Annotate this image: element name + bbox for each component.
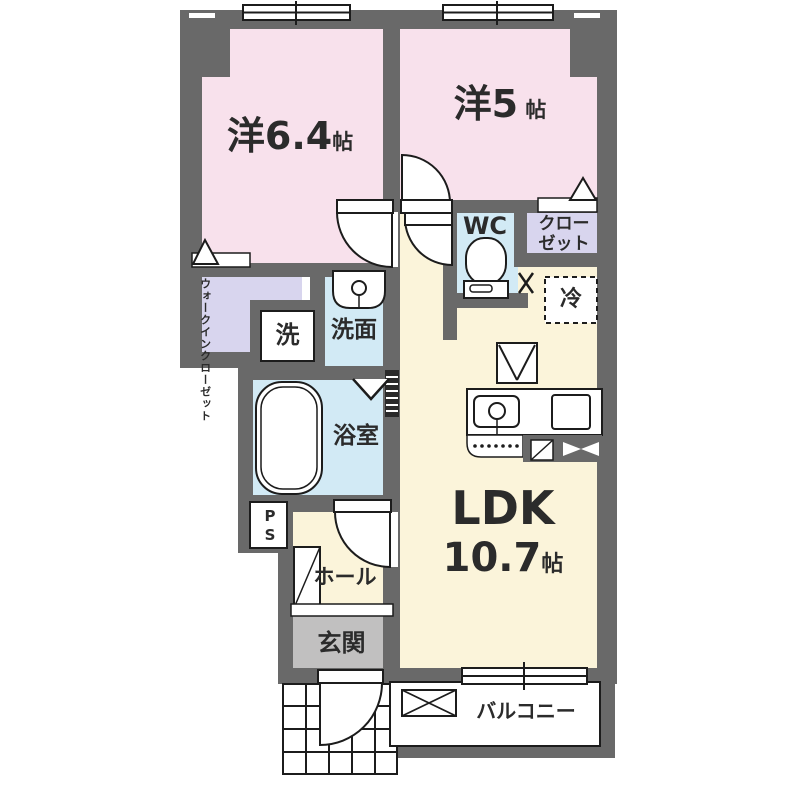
laundry-label: 洗 bbox=[261, 322, 314, 348]
window-bedroom1 bbox=[243, 1, 350, 25]
kitchen-faucet-icon bbox=[489, 403, 505, 419]
bedroom1-door bbox=[337, 200, 398, 267]
toilet-icon bbox=[464, 238, 508, 298]
entrance-label: 玄関 bbox=[293, 630, 390, 656]
kitchen-counter-edge bbox=[467, 435, 523, 457]
duct-x-mark bbox=[519, 273, 533, 293]
floor-plan: 洋6.4帖 洋5 帖 WC クローゼット 冷 ウォークインクローゼット 洗 洗面… bbox=[0, 0, 798, 800]
closet-opening bbox=[538, 178, 597, 212]
window-bedroom2 bbox=[443, 1, 553, 25]
bathtub-icon bbox=[256, 382, 322, 494]
kitchen-stove-icon bbox=[552, 395, 590, 429]
washroom-label: 洗面 bbox=[318, 318, 390, 343]
plan-symbols bbox=[0, 0, 798, 800]
walk-in-closet-label: ウォークインクローゼット bbox=[196, 278, 214, 352]
kitchen-counter bbox=[467, 389, 602, 435]
washbasin-icon bbox=[333, 271, 385, 308]
bedroom2-label: 洋5 帖 bbox=[415, 84, 585, 126]
balcony-label: バルコニー bbox=[460, 700, 592, 722]
bedroom2-door bbox=[401, 155, 452, 213]
refrigerator-label: 冷 bbox=[545, 288, 597, 312]
kitchen-side-wall-band bbox=[523, 435, 602, 462]
balcony-drain-box bbox=[402, 690, 456, 716]
walk-in-closet-opening bbox=[192, 240, 250, 267]
bath-vent-strip bbox=[385, 370, 399, 417]
hall-label: ホール bbox=[300, 566, 390, 589]
closet-label: クローゼット bbox=[524, 214, 604, 255]
wc-label: WC bbox=[452, 213, 518, 239]
bathroom-door-mark bbox=[353, 379, 389, 399]
corridor-door bbox=[405, 213, 452, 265]
entrance-step bbox=[291, 604, 393, 616]
pipe-space-label: PS bbox=[258, 506, 282, 546]
hall-door bbox=[334, 500, 398, 567]
bedroom1-label: 洋6.4帖 bbox=[200, 116, 380, 158]
ldk-label: LDK 10.7帖 bbox=[418, 482, 588, 581]
bathroom-label: 浴室 bbox=[320, 424, 392, 449]
kitchen-v-square bbox=[497, 343, 537, 383]
